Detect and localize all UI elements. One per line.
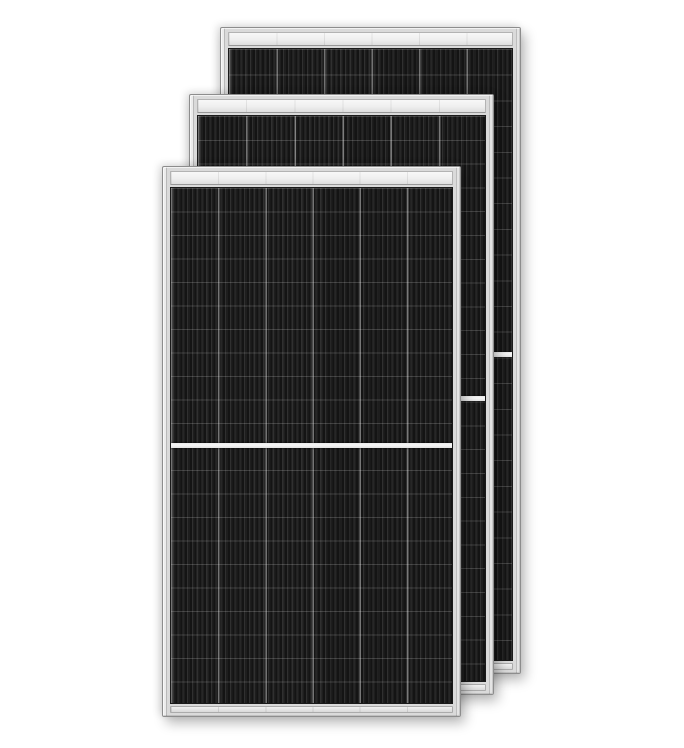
panel-bottom-frame-rail [170,706,453,713]
panel-top-frame-rail [228,32,513,46]
panel-top-frame-rail [170,171,453,185]
product-image-canvas [0,0,684,748]
solar-panel-front [162,166,461,717]
panel-center-gap [171,443,452,448]
panel-cell-grid [170,187,453,704]
panel-top-frame-rail [197,99,486,113]
